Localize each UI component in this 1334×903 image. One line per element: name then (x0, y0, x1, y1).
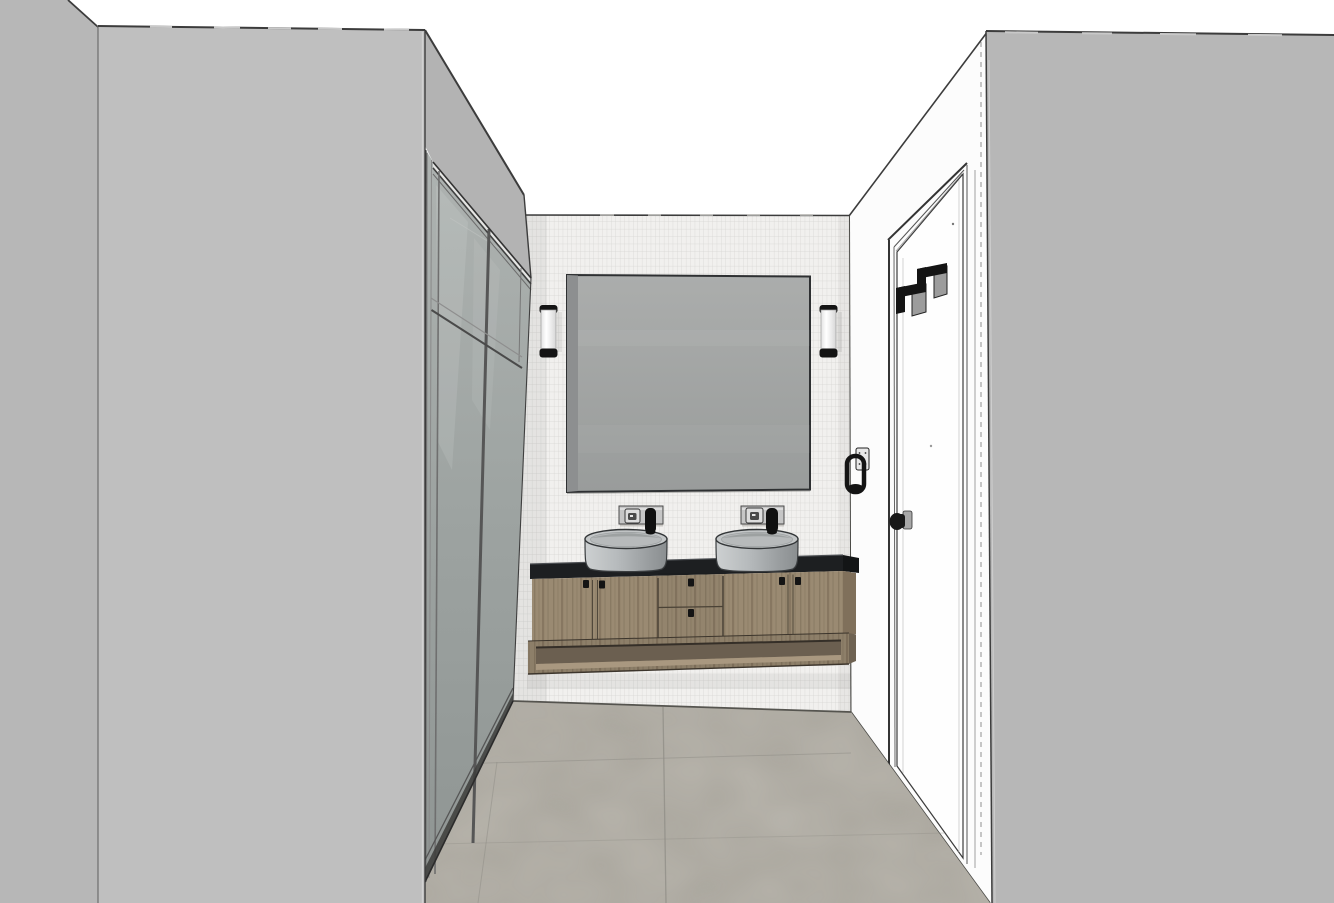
right-wall (986, 31, 1334, 903)
mirror-reflection-band (578, 330, 810, 346)
faucet-handle-slit (630, 515, 633, 517)
countertop-side (843, 555, 859, 573)
left-wall (0, 0, 425, 903)
sconce-right (820, 305, 843, 358)
sink-left (585, 530, 667, 572)
mirror-glass (567, 275, 810, 492)
left-wall-return (0, 0, 98, 903)
left-wall-main (98, 26, 425, 903)
door-speck-2 (930, 445, 932, 447)
door-speck-1 (952, 223, 954, 225)
sconce-cap-bottom (540, 349, 558, 358)
sink-right (716, 530, 798, 572)
sconce-left (540, 305, 563, 358)
handle-knob (890, 513, 905, 530)
vanity-shadow-on-wall (527, 674, 851, 689)
holder-screw (865, 452, 867, 454)
faucet-spout-tip (767, 530, 777, 535)
sconce-body (541, 310, 556, 351)
faucet-spout-tip (646, 530, 656, 535)
sconce-shadow (557, 312, 562, 352)
mirror-reflection-band2 (578, 425, 810, 453)
holder-screw (859, 452, 861, 454)
sconce-body (821, 310, 836, 351)
render-viewport (0, 0, 1334, 903)
holder-screw (859, 463, 861, 465)
faucet-spout (645, 508, 656, 533)
mirror-left-edge (567, 275, 578, 492)
vanity-cabinet-side (843, 571, 856, 636)
faucet-handle-slit (752, 514, 756, 516)
mirror (567, 275, 810, 494)
right-wall-surface (986, 31, 1334, 903)
vanity (528, 555, 859, 674)
shelf-side (849, 633, 856, 664)
hook-lower-stem (896, 286, 905, 314)
sconce-cap-bottom (820, 349, 838, 358)
sconce-shadow (837, 312, 842, 352)
faucet-spout (766, 508, 778, 533)
holder-ring-base (847, 484, 864, 494)
